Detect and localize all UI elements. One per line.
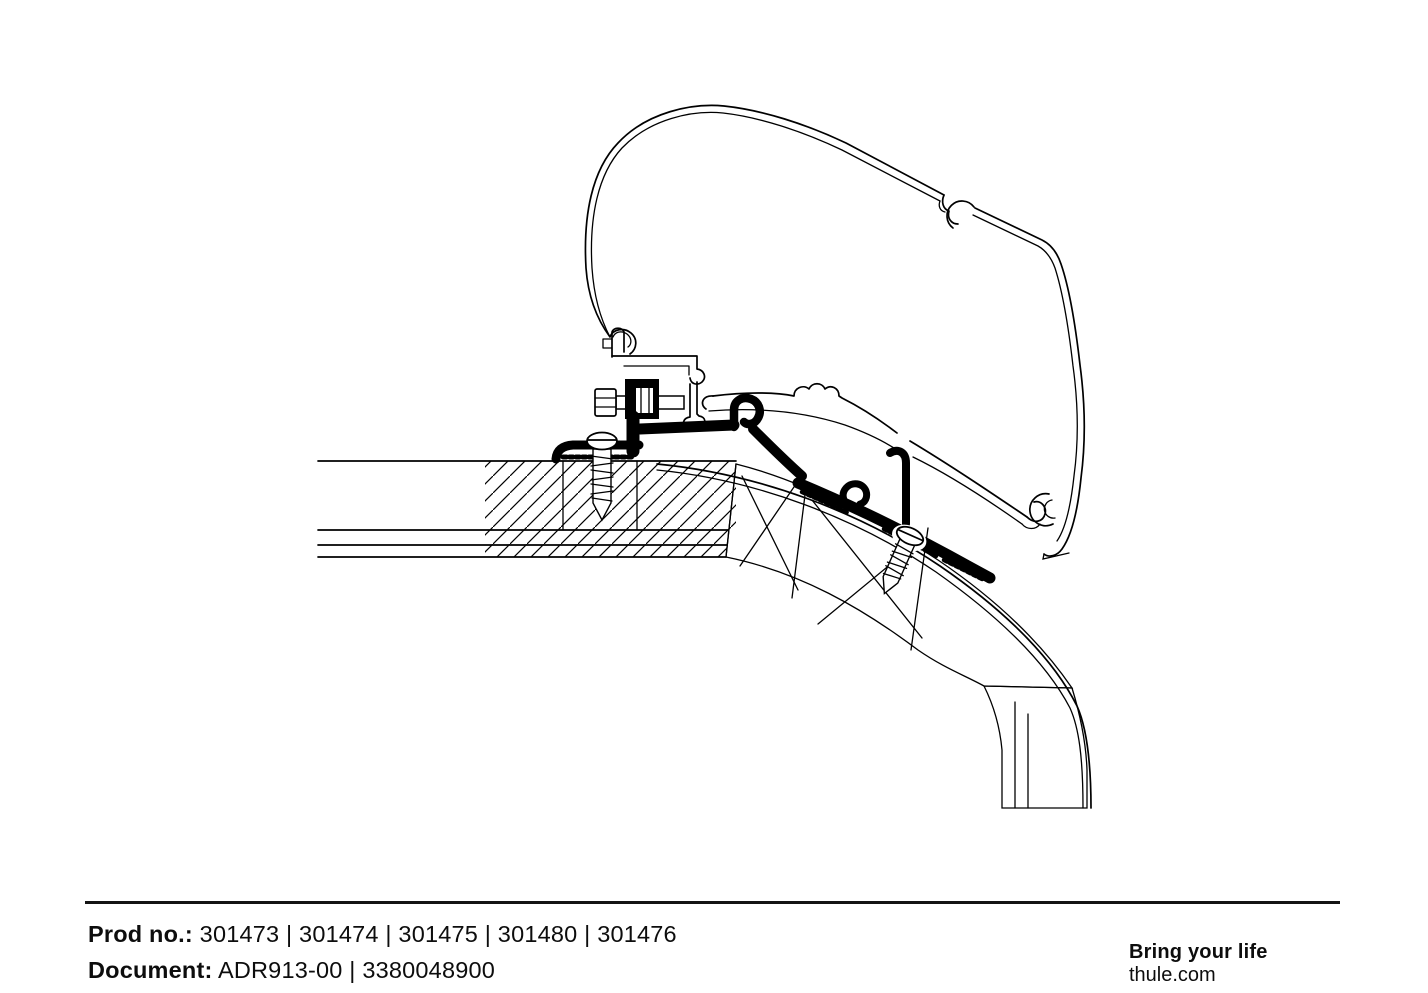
bottom-profile-end-hook-inner [1022, 524, 1040, 529]
nut-window [636, 388, 653, 413]
bolt-hex-head [595, 389, 616, 416]
roof-bottom-layer [485, 545, 727, 557]
screw-head [587, 433, 617, 450]
cassette-clip-hook [947, 201, 974, 228]
brand-block: Bring your life thule.com [1129, 941, 1268, 987]
document-values: ADR913-00 | 3380048900 [218, 957, 495, 983]
technical-drawing [0, 0, 1428, 993]
wall-lamination-lines [1015, 702, 1028, 808]
rail-body-inner [624, 366, 689, 375]
bottom-profile-start-curl [702, 396, 713, 409]
prod-no-line: Prod no.: 301473 | 301474 | 301475 | 301… [88, 916, 677, 952]
cassette-clip-lip [943, 195, 958, 224]
footer-divider [85, 901, 1340, 904]
document-label: Document: [88, 957, 213, 983]
adapter-diagonal [753, 429, 802, 476]
cassette-left-arc-inner [591, 112, 940, 347]
adapter-post [890, 451, 906, 524]
adapter-hook [734, 398, 760, 427]
roof-side-wall [984, 686, 1087, 808]
roof-mid-layer [485, 530, 728, 545]
prod-no-label: Prod no.: [88, 921, 193, 947]
vehicle-roof-cross-section [318, 461, 1091, 808]
page: Prod no.: 301473 | 301474 | 301475 | 301… [0, 0, 1428, 993]
brand-website: thule.com [1129, 964, 1268, 987]
document-line: Document: ADR913-00 | 3380048900 [88, 952, 677, 988]
cassette-left-arc-outer [585, 105, 944, 354]
rail-left-stub [603, 339, 612, 348]
product-info: Prod no.: 301473 | 301474 | 301475 | 301… [88, 916, 677, 988]
adapter-arm [640, 425, 734, 429]
brand-tagline: Bring your life [1129, 941, 1268, 964]
angled-roof-screw [868, 520, 931, 601]
cassette-right-edge-outer [975, 208, 1084, 556]
prod-no-values: 301473 | 301474 | 301475 | 301480 | 3014… [200, 921, 677, 947]
